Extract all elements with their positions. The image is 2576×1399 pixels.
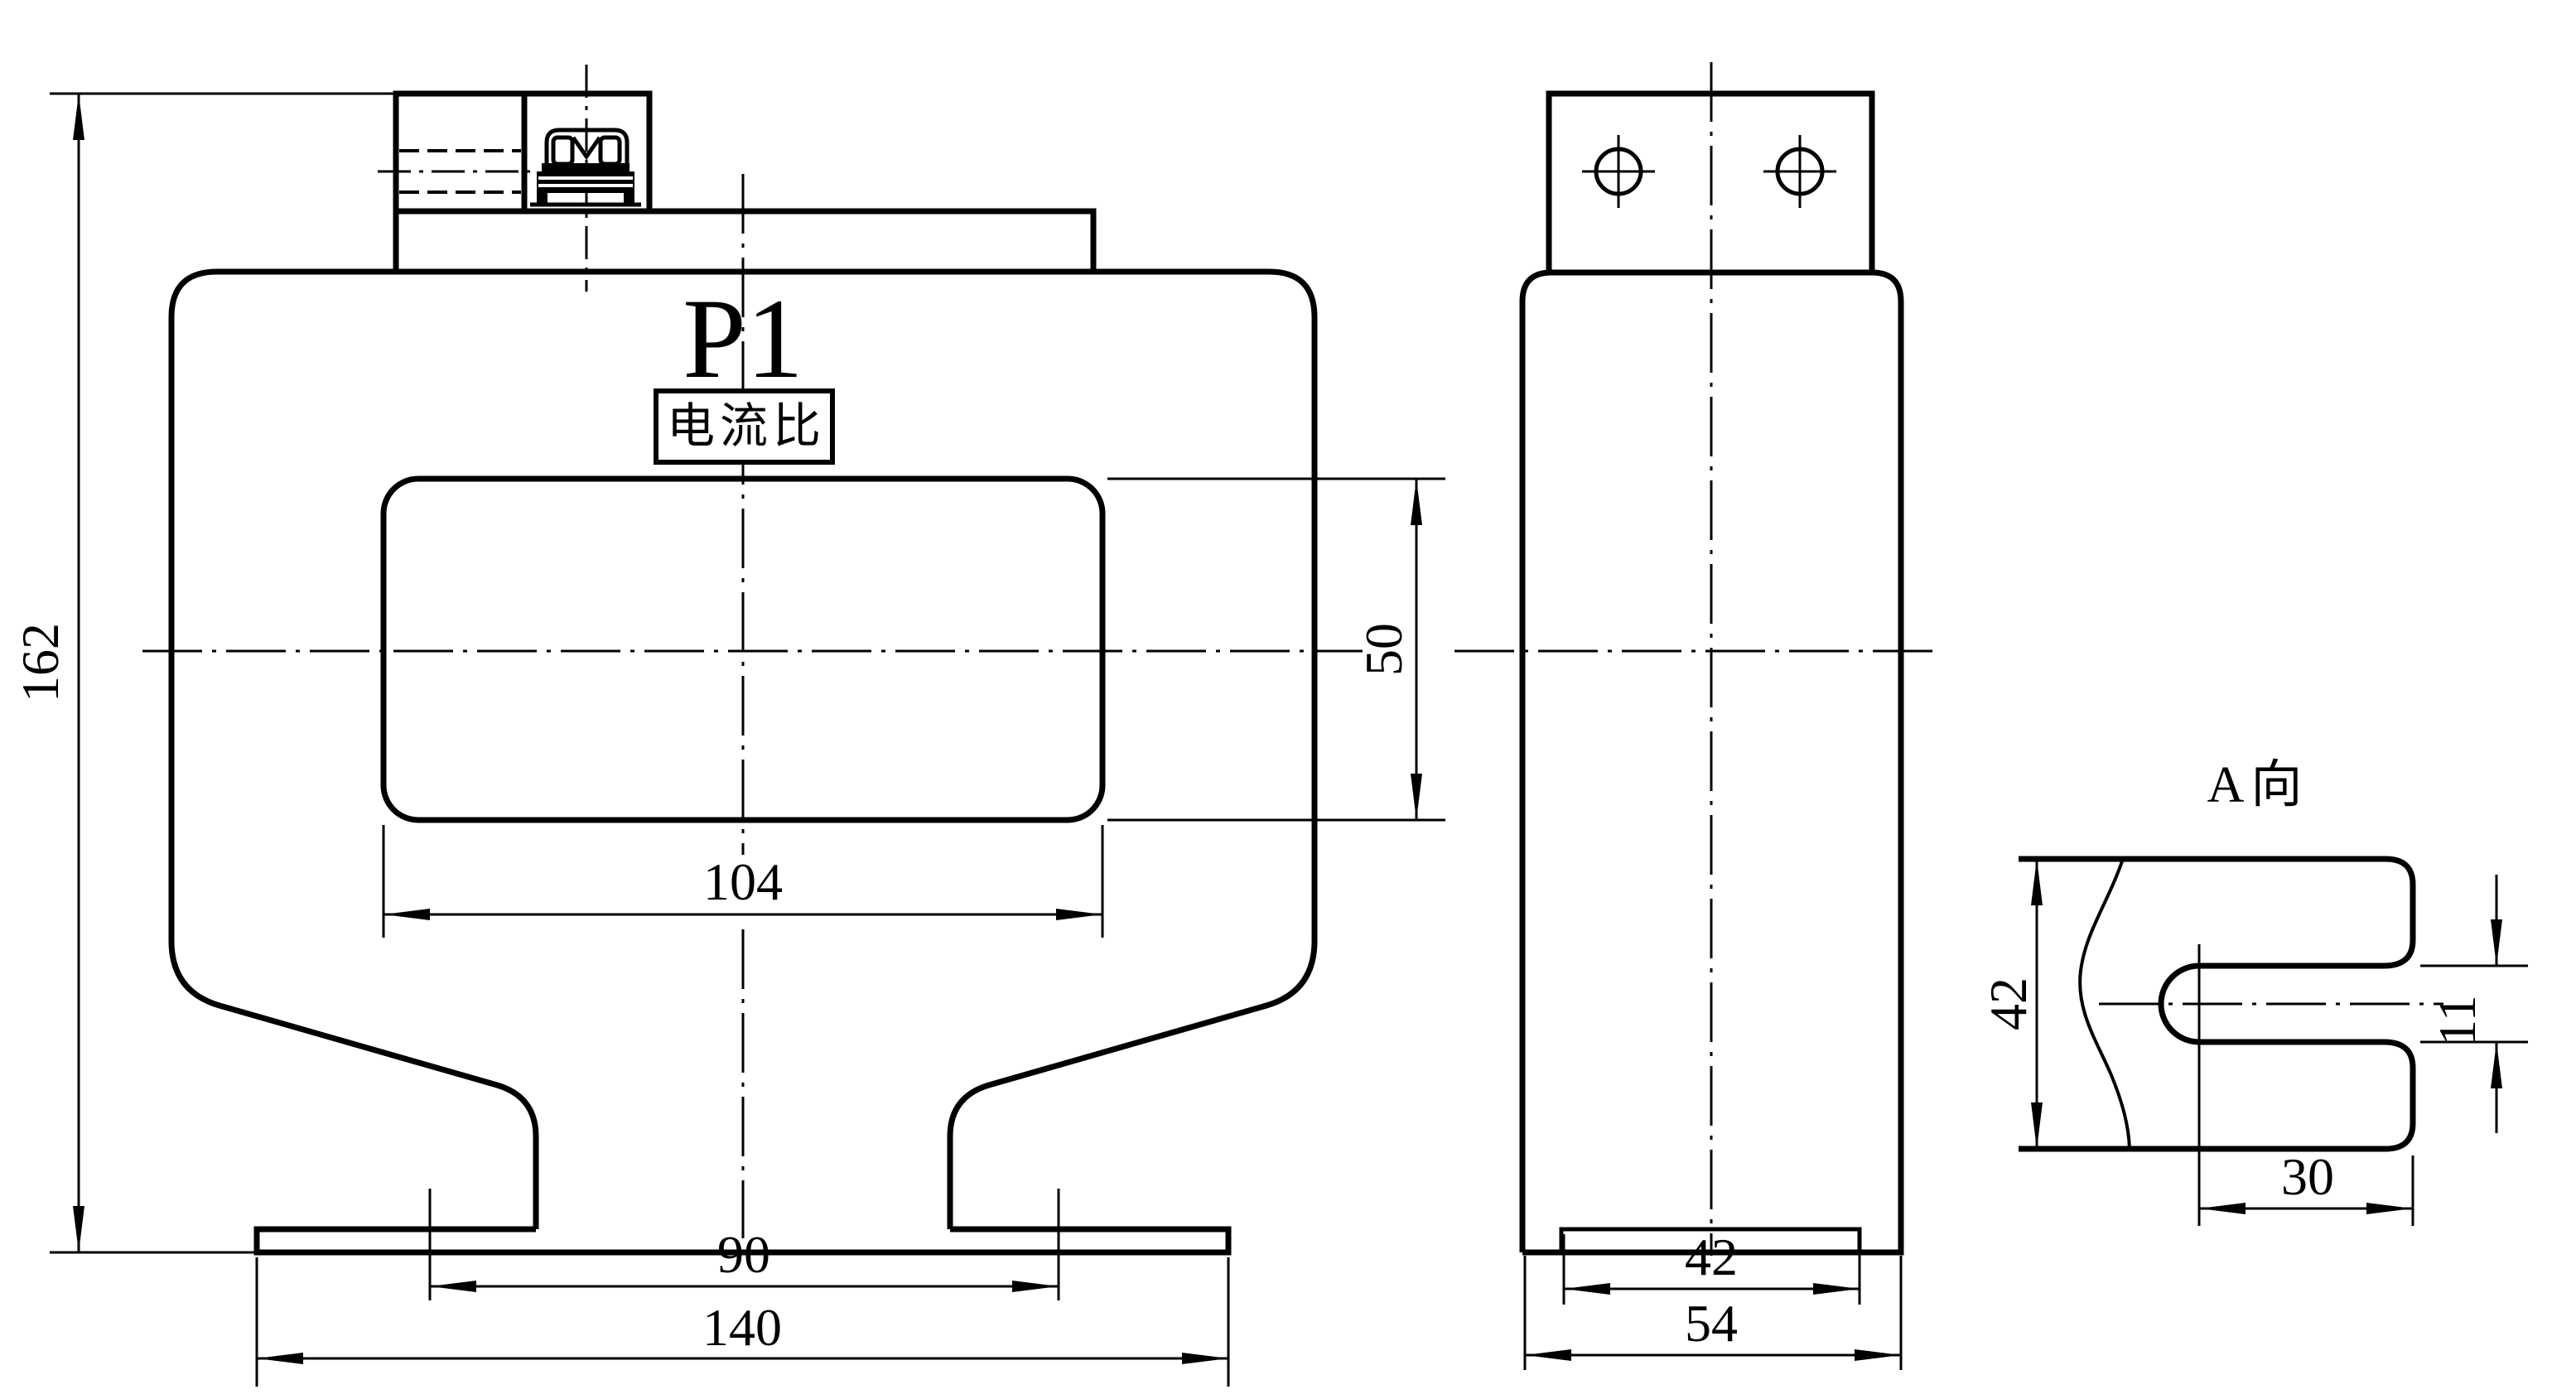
dim-text-30: 30 bbox=[2281, 1147, 2334, 1206]
engineering-drawing-canvas: P1 电流比 162 104 50 90 bbox=[0, 0, 2576, 1399]
dim-text-162: 162 bbox=[11, 623, 70, 702]
polarity-label: P1 bbox=[683, 275, 803, 402]
dim-text-54: 54 bbox=[1685, 1294, 1738, 1353]
nameplate-text: 电流比 bbox=[667, 399, 826, 453]
drawing-sheet: P1 电流比 162 104 50 90 bbox=[0, 0, 2576, 1399]
dim-text-11: 11 bbox=[2428, 995, 2487, 1046]
screw-body bbox=[537, 171, 634, 193]
dim-text-90: 90 bbox=[717, 1225, 770, 1284]
screw-flange bbox=[542, 163, 630, 171]
dim-text-140: 140 bbox=[702, 1298, 782, 1357]
dim-text-104: 104 bbox=[703, 852, 783, 911]
dim-text-42-aux: 42 bbox=[1979, 977, 2038, 1030]
dim-text-42: 42 bbox=[1685, 1228, 1738, 1286]
dim-text-50: 50 bbox=[1354, 623, 1413, 676]
view-a-label: A向 bbox=[2207, 757, 2309, 813]
